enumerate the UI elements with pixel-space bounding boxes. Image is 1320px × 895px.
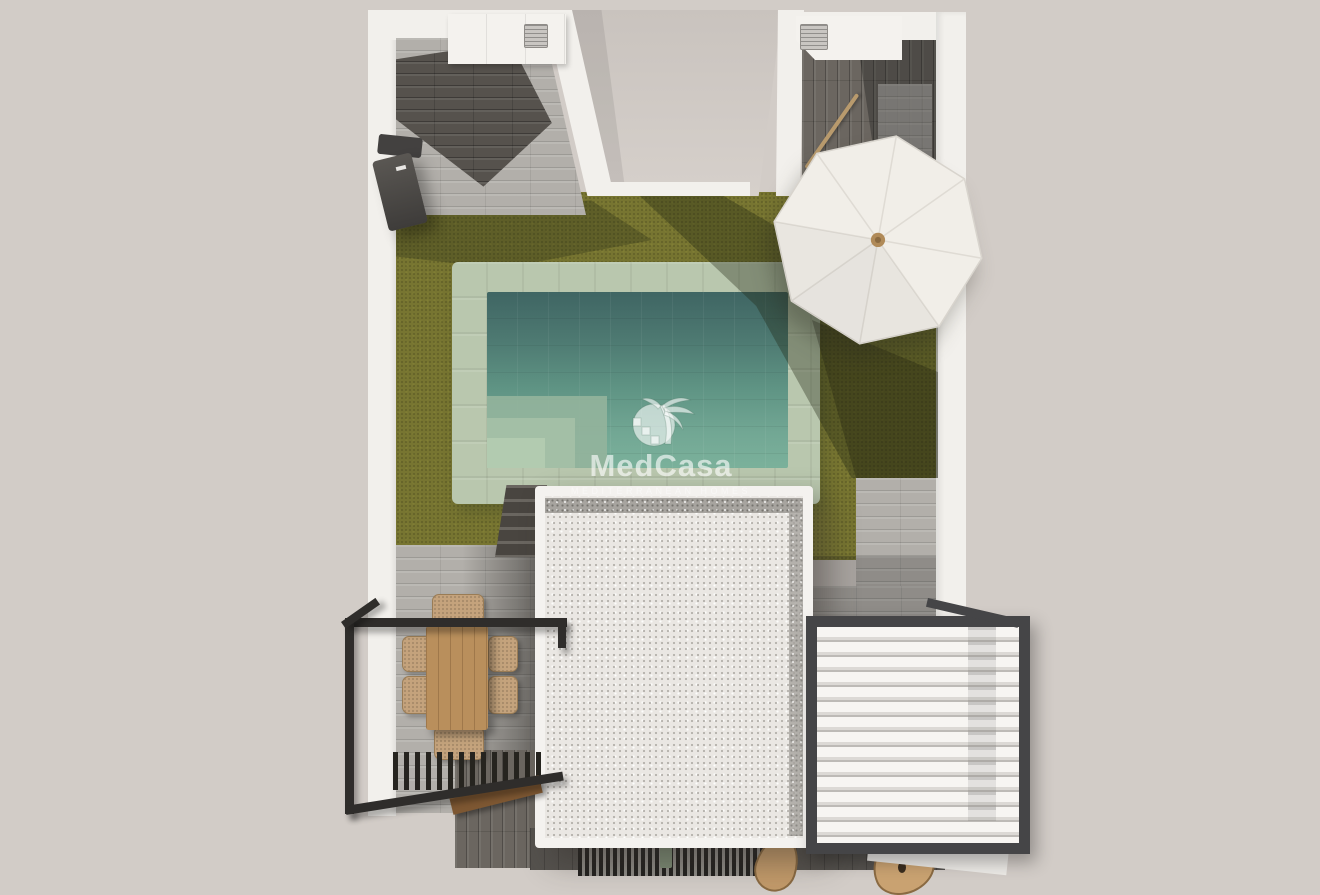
louvered-pergola-slat-ends	[968, 627, 996, 821]
louvered-pergola	[806, 616, 1030, 854]
left-perimeter-wall	[368, 10, 396, 816]
ac-unit-right-icon	[800, 24, 828, 50]
pergola-frame-left	[345, 618, 354, 814]
render-canvas: MedCasa MEDITERRANEAN HOMES	[0, 0, 1320, 895]
garden-parasol	[768, 132, 992, 356]
pergola-frame-post	[558, 618, 566, 648]
dining-chair-right-1	[488, 636, 518, 672]
pool-step-3	[487, 438, 545, 468]
pergola-frame-top	[345, 618, 567, 627]
roof-gray-band-top	[545, 498, 801, 513]
dining-chair-right-2	[488, 676, 518, 714]
villa-roof	[535, 486, 813, 848]
left-storage-counter	[448, 14, 566, 64]
right-path-shade	[812, 556, 938, 622]
roof-gray-band-right	[789, 498, 803, 836]
dining-table	[426, 626, 488, 730]
notch-sill-wall	[602, 182, 750, 196]
ac-unit-left-icon	[524, 24, 548, 48]
